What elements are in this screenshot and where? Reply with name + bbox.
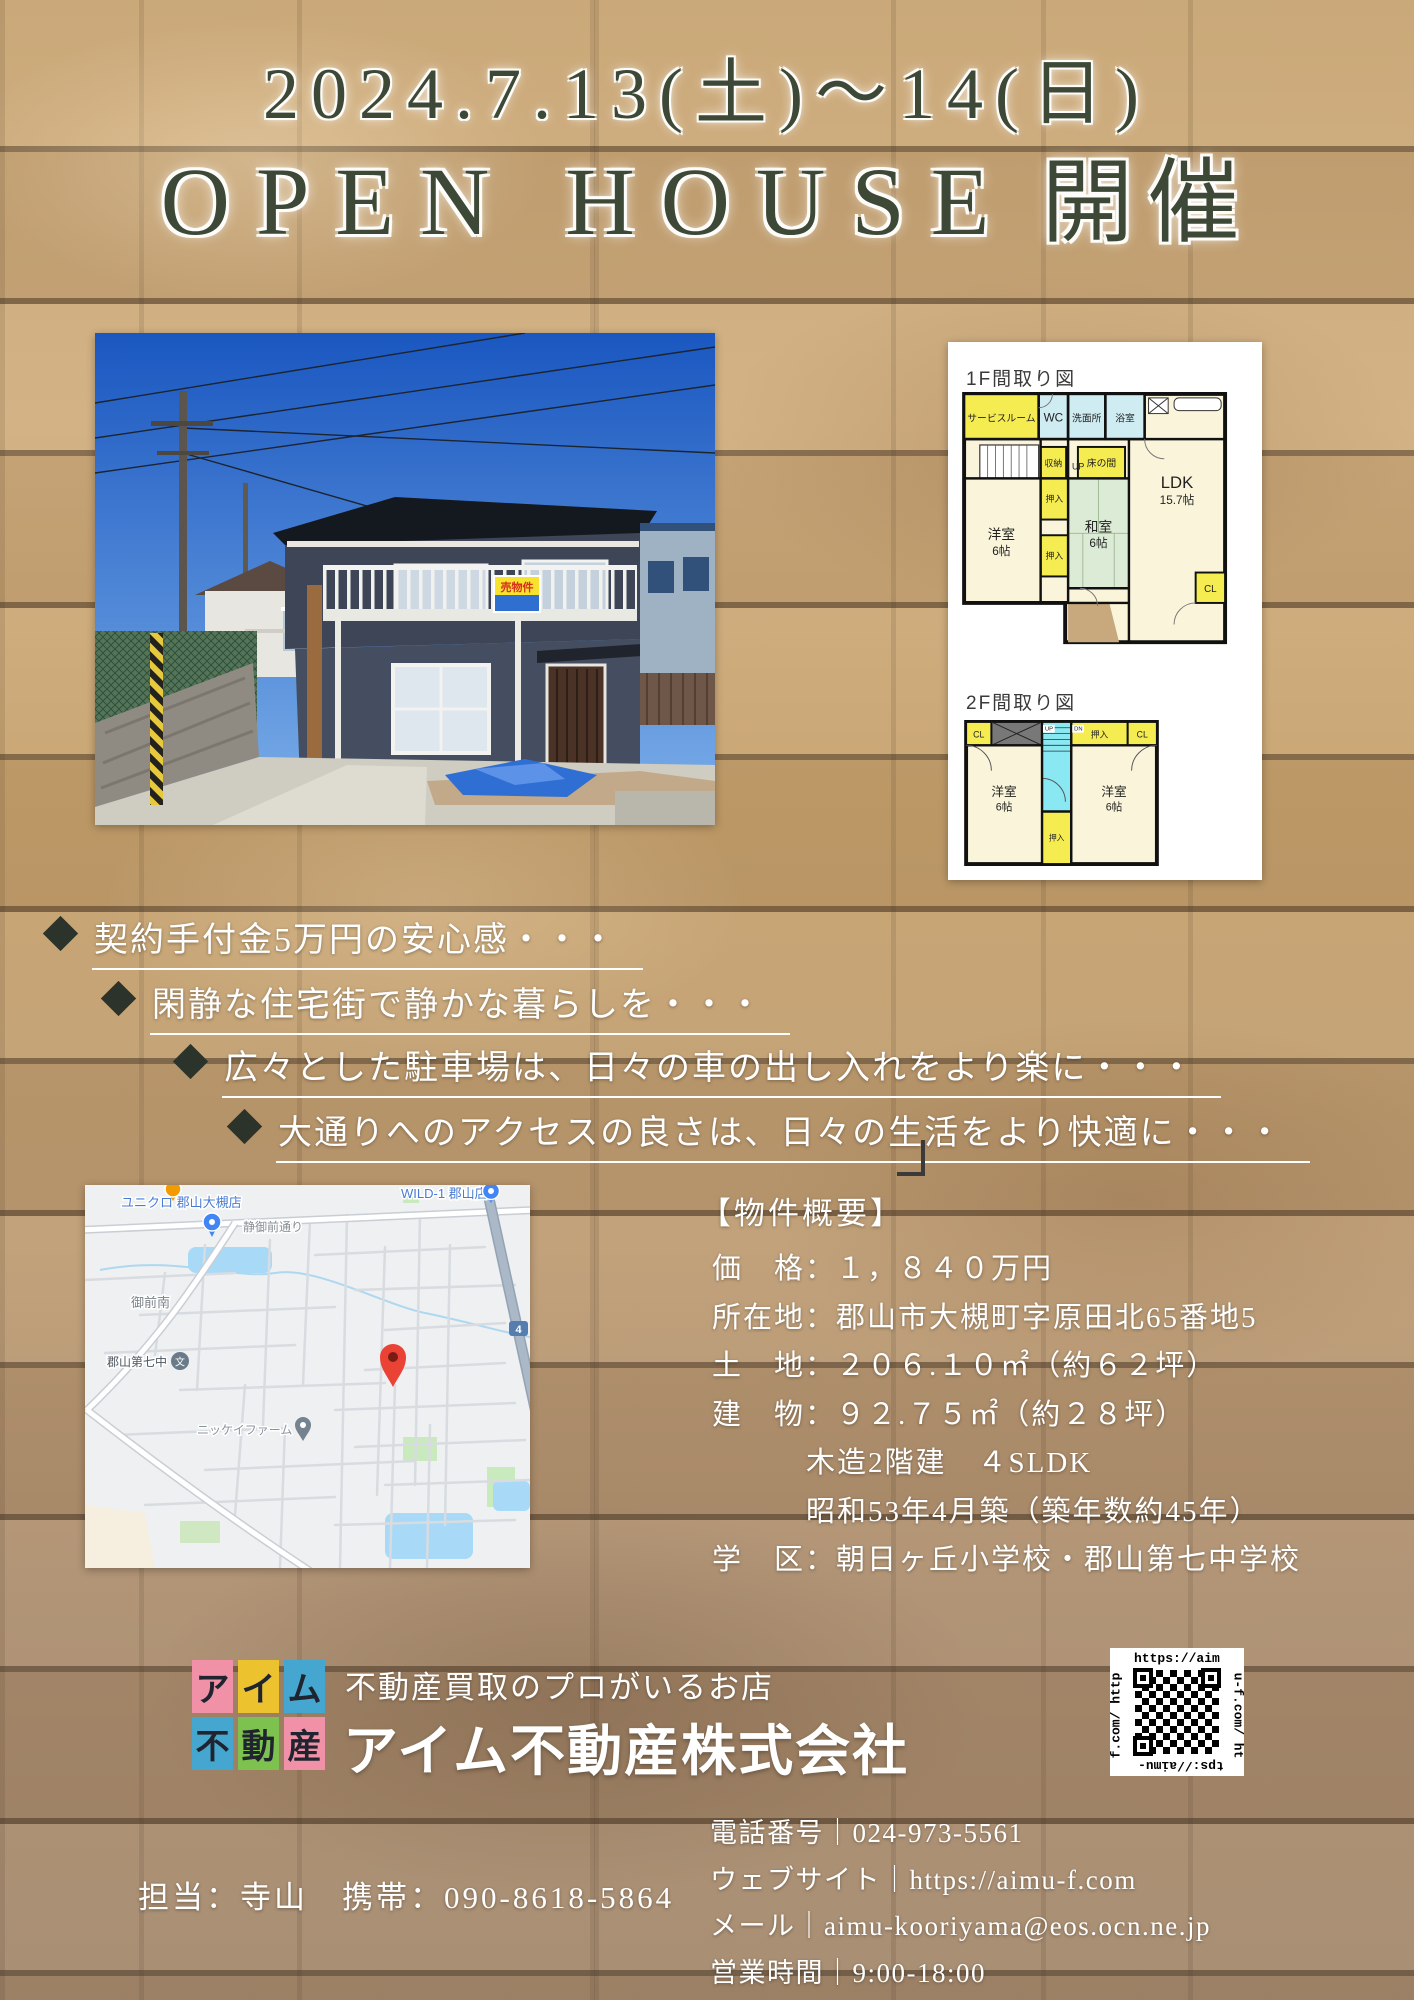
balcony-deck [323, 609, 637, 621]
svg-text:6帖: 6帖 [1106, 801, 1123, 814]
property-built-year: 昭和53年4月築（築年数約45年） [700, 1488, 1340, 1537]
logo-tile: 動 [238, 1717, 279, 1770]
svg-text:文: 文 [175, 1356, 185, 1369]
svg-text:6帖: 6帖 [996, 801, 1013, 814]
qr-code-icon [1135, 1670, 1219, 1754]
svg-text:サービスルーム: サービスルーム [967, 412, 1035, 424]
property-building: 建 物：９２.７５㎡（約２８坪） [700, 1391, 1340, 1440]
svg-text:CL: CL [973, 730, 984, 740]
svg-text:CL: CL [1204, 584, 1217, 595]
diamond-bullet-icon [227, 1109, 262, 1144]
title-open-house: OPEN HOUSE [161, 148, 1016, 255]
logo-tile: イ [238, 1660, 279, 1713]
qr-url-top: https://aim [1134, 1651, 1220, 1666]
wood-corner-post [307, 585, 322, 781]
map-illustration: 4 ユニクロ 郡山大槻店 静御前通り WILD-1 郡山店 御前南 郡山第七中 … [85, 1185, 530, 1568]
svg-text:床の間: 床の間 [1087, 457, 1116, 470]
selling-point-4: 大通りへのアクセスの良さは、日々の生活をより快適に・・・ [232, 1105, 1310, 1163]
house-photo-illustration: 売物件 売 家 [95, 333, 715, 825]
floorplan-1f-title: 1F間取り図 [966, 364, 1076, 391]
main-house: 売物件 売 家 [273, 497, 693, 781]
contact-phone: 電話番号｜024-973-5561 [710, 1810, 1211, 1857]
svg-text:DN: DN [1074, 727, 1082, 733]
floorplan-2f-title: 2F間取り図 [966, 688, 1076, 715]
svg-text:浴室: 浴室 [1115, 411, 1135, 424]
page-title: OPEN HOUSE開催 [0, 128, 1414, 261]
property-address: 所在地：郡山市大槻町字原田北65番地5 [700, 1294, 1340, 1343]
logo-tile: ム [284, 1660, 325, 1713]
selling-point-2: 閑静な住宅街で静かな暮らしを・・・ [106, 977, 790, 1035]
svg-text:LDK: LDK [1161, 473, 1193, 492]
property-structure: 木造2階建 ４SLDK [700, 1439, 1340, 1488]
closing-bracket-mark [897, 1140, 925, 1176]
property-land: 土 地：２０６.１０㎡（約６２坪） [700, 1342, 1340, 1391]
floorplan-panel: 1F間取り図 [948, 342, 1262, 880]
svg-text:押入: 押入 [1091, 729, 1109, 740]
svg-text:6帖: 6帖 [992, 544, 1011, 558]
route-4-shield: 4 [509, 1321, 528, 1336]
map-label-nikkei-farm: ニッケイファーム [197, 1423, 292, 1437]
svg-text:6帖: 6帖 [1089, 536, 1108, 550]
company-name: アイム不動産株式会社 [343, 1706, 909, 1786]
qr-url-right: u-f.com/ ht [1231, 1673, 1246, 1759]
property-summary-list: 価 格：１，８４０万円 所在地：郡山市大槻町字原田北65番地5 土 地：２０６.… [700, 1245, 1340, 1585]
title-kaisai: 開催 [1041, 152, 1253, 254]
map-label-wild1: WILD-1 郡山店 [401, 1186, 488, 1201]
qr-url-left: f.com/ http [1108, 1673, 1123, 1759]
floorplan-1f: サービスルーム WC 洗面所 浴室 収納 UP 床の間 押入 押入 洋室 6帖 … [962, 392, 1237, 652]
logo-tile: ア [192, 1660, 233, 1713]
svg-text:押入: 押入 [1046, 550, 1064, 561]
diamond-bullet-icon [43, 916, 78, 951]
neighbor-house-right [640, 523, 715, 725]
house-photo: 売物件 売 家 [95, 333, 715, 825]
svg-text:UP: UP [1072, 462, 1084, 472]
floorplan-2f: UP DN CL CL 押入 押入 洋室 6帖 洋室 6帖 [964, 720, 1159, 866]
balcony-railing [323, 567, 637, 611]
map-label-gozen-minami: 御前南 [131, 1295, 170, 1310]
logo-tile: 不 [192, 1717, 233, 1770]
sale-sign: 売物件 [493, 575, 541, 613]
svg-text:和室: 和室 [1085, 518, 1112, 534]
contact-website: ウェブサイト｜https://aimu-f.com [710, 1857, 1211, 1904]
flyer-poster: 2024.7.13(土)～14(日) OPEN HOUSE開催 [0, 0, 1414, 2000]
concrete-block [615, 791, 715, 825]
hazard-striped-pole [150, 633, 163, 805]
logo-tile: 産 [284, 1717, 325, 1770]
svg-text:売物件: 売物件 [501, 580, 534, 594]
qr-code-block: https://aim u-f.com/ ht tps://aimu- f.co… [1110, 1648, 1244, 1776]
svg-text:押入: 押入 [1049, 833, 1065, 843]
diamond-bullet-icon [173, 1044, 208, 1079]
svg-text:収納: 収納 [1045, 458, 1063, 469]
contact-info: 電話番号｜024-973-5561 ウェブサイト｜https://aimu-f.… [710, 1810, 1211, 1996]
svg-text:CL: CL [1137, 730, 1148, 740]
event-date: 2024.7.13(土)～14(日) [0, 34, 1414, 139]
map-label-school: 郡山第七中 [107, 1354, 167, 1369]
selling-point-3: 広々とした駐車場は、日々の車の出し入れをより楽に・・・ [178, 1040, 1221, 1098]
svg-text:4: 4 [515, 1324, 522, 1336]
location-map: 4 ユニクロ 郡山大槻店 静御前通り WILD-1 郡山店 御前南 郡山第七中 … [85, 1185, 530, 1568]
svg-text:洋室: 洋室 [1101, 784, 1126, 799]
property-price: 価 格：１，８４０万円 [700, 1245, 1340, 1294]
map-label-uniqlo: ユニクロ 郡山大槻店 [121, 1195, 242, 1210]
company-logo: ア イ ム 不 動 産 [192, 1660, 328, 1774]
svg-text:押入: 押入 [1046, 493, 1064, 504]
svg-text:15.7帖: 15.7帖 [1160, 493, 1195, 507]
property-summary: 【物件概要】 価 格：１，８４０万円 所在地：郡山市大槻町字原田北65番地5 土… [700, 1188, 1340, 1585]
svg-text:UP: UP [1045, 727, 1053, 733]
staff-contact-line: 担当：寺山 携帯：090-8618-5864 [138, 1872, 674, 1917]
diamond-bullet-icon [101, 981, 136, 1016]
company-tagline: 不動産買取のプロがいるお店 [345, 1662, 774, 1707]
property-summary-heading: 【物件概要】 [700, 1188, 1340, 1233]
map-label-street: 静御前通り [243, 1219, 303, 1234]
selling-point-1: 契約手付金5万円の安心感・・・ [48, 912, 643, 970]
contact-hours: 営業時間｜9:00-18:00 [710, 1950, 1211, 1997]
svg-text:洗面所: 洗面所 [1072, 412, 1102, 424]
property-school-district: 学 区：朝日ヶ丘小学校・郡山第七中学校 [700, 1536, 1340, 1585]
map-pond [493, 1481, 530, 1511]
school-icon: 文 [171, 1352, 189, 1370]
svg-text:洋室: 洋室 [991, 784, 1016, 799]
map-grounds-area [85, 1505, 155, 1568]
svg-text:WC: WC [1044, 411, 1064, 424]
contact-email: メール｜aimu-kooriyama@eos.ocn.ne.jp [710, 1903, 1211, 1950]
svg-text:洋室: 洋室 [988, 526, 1015, 542]
qr-url-bottom: tps://aimu- [1138, 1758, 1224, 1773]
